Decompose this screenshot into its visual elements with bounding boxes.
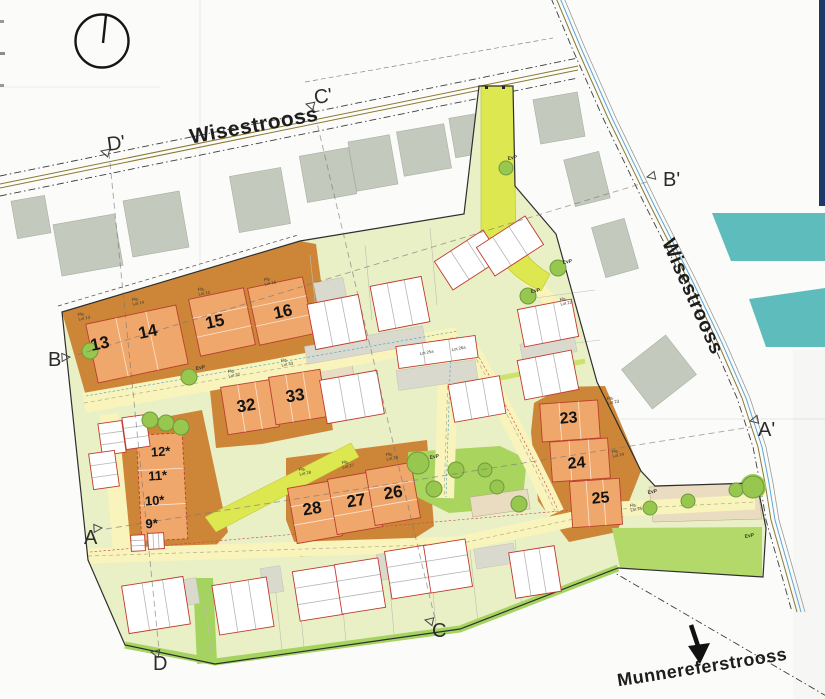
micro-label: Flg.Lot 23 — [606, 394, 620, 406]
section-marker-b-prime: B' — [646, 169, 680, 191]
new-house-footprint — [148, 533, 165, 550]
plot-number: 16 — [272, 300, 294, 323]
new-house — [424, 539, 473, 593]
plot-number: 28 — [301, 498, 323, 520]
plot-number: 32 — [235, 395, 257, 417]
existing-building — [533, 92, 585, 144]
north-compass-icon — [76, 15, 129, 68]
tree — [158, 415, 174, 431]
new-house — [334, 558, 385, 614]
existing-building — [396, 124, 451, 177]
new-house — [320, 370, 385, 423]
tree — [511, 496, 527, 512]
tree — [478, 463, 492, 477]
section-marker-d: D — [150, 648, 167, 675]
new-house-footprint — [509, 546, 562, 599]
new-house-footprint — [424, 539, 473, 593]
tree — [173, 419, 189, 435]
tree — [407, 452, 429, 474]
crease — [199, 0, 201, 315]
new-house-footprint — [307, 294, 367, 349]
plot-number: 9* — [145, 516, 159, 532]
scan-speck — [0, 20, 4, 23]
new-house-footprint — [212, 577, 274, 635]
section-marker-triangle — [646, 171, 655, 180]
crease — [0, 86, 160, 88]
plot-number: 25 — [591, 489, 610, 507]
new-house-footprint — [320, 370, 385, 423]
new-house — [122, 576, 191, 633]
section-marker-label: A — [84, 527, 98, 549]
new-house-footprint — [131, 535, 146, 552]
new-house-footprint — [89, 450, 120, 489]
site-plan-canvas: D'C'B'A'BACD 13141516323328272623242512*… — [0, 0, 825, 699]
street-label-wisestrooss-top: Wisestrooss — [188, 103, 320, 149]
plot-number: 23 — [559, 409, 578, 427]
tree — [681, 494, 695, 508]
compass-circle — [76, 15, 129, 68]
existing-building — [622, 335, 697, 409]
section-marker-label: C — [432, 620, 446, 642]
section-marker-d-prime: D' — [100, 132, 127, 157]
new-house — [509, 546, 562, 599]
micro-label-text: EvP — [507, 154, 518, 162]
existing-building — [11, 195, 51, 238]
existing-building — [299, 148, 356, 203]
new-house-footprint — [334, 558, 385, 614]
plot-number: 10* — [144, 492, 165, 508]
tree — [729, 483, 743, 497]
crease — [600, 418, 825, 420]
micro-label: EvP — [507, 154, 518, 162]
section-marker-label: B — [48, 349, 61, 371]
new-house-footprint — [370, 276, 430, 331]
tree — [181, 369, 197, 385]
plot-number: 15 — [204, 310, 226, 333]
cadastral-line — [305, 38, 553, 82]
new-house — [307, 294, 367, 349]
plot-number: 27 — [345, 490, 367, 512]
scan-speck — [0, 52, 5, 55]
plot-number: 13 — [89, 332, 111, 355]
scan-speck — [0, 84, 4, 87]
new-house — [89, 450, 120, 489]
new-house — [131, 535, 146, 552]
micro-label-text: Lot 23 — [607, 398, 620, 405]
new-house — [148, 533, 165, 550]
section-marker-label: A' — [758, 419, 775, 441]
teal-bar — [749, 288, 825, 347]
teal-bar — [712, 213, 825, 261]
tree — [448, 462, 464, 478]
existing-building — [591, 218, 638, 277]
existing-building — [564, 151, 611, 206]
tree — [142, 412, 158, 428]
plot-number: 24 — [567, 454, 586, 472]
section-marker-label: B' — [663, 169, 680, 191]
tree — [742, 476, 764, 498]
brand-bars — [712, 0, 825, 347]
scanned-site-plan: D'C'B'A'BACD 13141516323328272623242512*… — [0, 0, 825, 699]
plot-number: 11* — [148, 467, 169, 483]
section-marker-label: D — [153, 653, 167, 675]
new-house — [212, 577, 274, 635]
plot-number: 26 — [382, 482, 404, 504]
micro-label: EvP — [562, 258, 573, 266]
tree — [643, 501, 657, 515]
tree — [490, 480, 504, 494]
plot-number: 33 — [284, 385, 306, 407]
tree — [426, 481, 442, 497]
existing-building — [348, 135, 398, 192]
compass-needle — [103, 15, 106, 43]
scan-margin — [793, 350, 825, 699]
new-house-footprint — [122, 576, 191, 633]
existing-building — [123, 191, 189, 257]
micro-label-text: EvP — [562, 258, 573, 266]
tree — [499, 161, 513, 175]
new-house — [370, 276, 430, 331]
existing-building — [53, 214, 123, 276]
navy-edge-bar — [819, 0, 825, 206]
plot-number: 12* — [150, 443, 171, 459]
existing-building — [229, 167, 290, 232]
